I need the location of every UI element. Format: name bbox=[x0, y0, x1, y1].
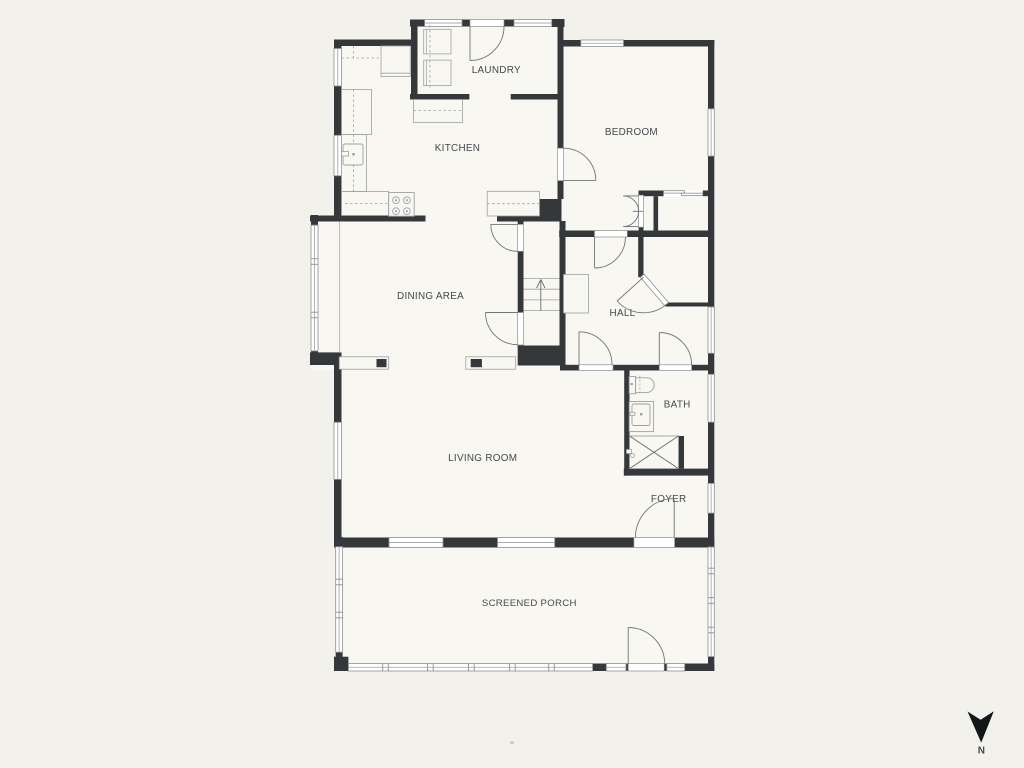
svg-text:N: N bbox=[978, 746, 986, 757]
svg-text:LAUNDRY: LAUNDRY bbox=[472, 65, 521, 76]
svg-text:SCREENED PORCH: SCREENED PORCH bbox=[482, 598, 577, 609]
svg-text:HALL: HALL bbox=[610, 308, 636, 319]
svg-text:DINING AREA: DINING AREA bbox=[397, 291, 464, 302]
svg-text:BATH: BATH bbox=[664, 399, 691, 410]
svg-text:LIVING ROOM: LIVING ROOM bbox=[448, 453, 517, 464]
svg-text:KITCHEN: KITCHEN bbox=[435, 143, 480, 154]
svg-text:BEDROOM: BEDROOM bbox=[605, 127, 658, 138]
